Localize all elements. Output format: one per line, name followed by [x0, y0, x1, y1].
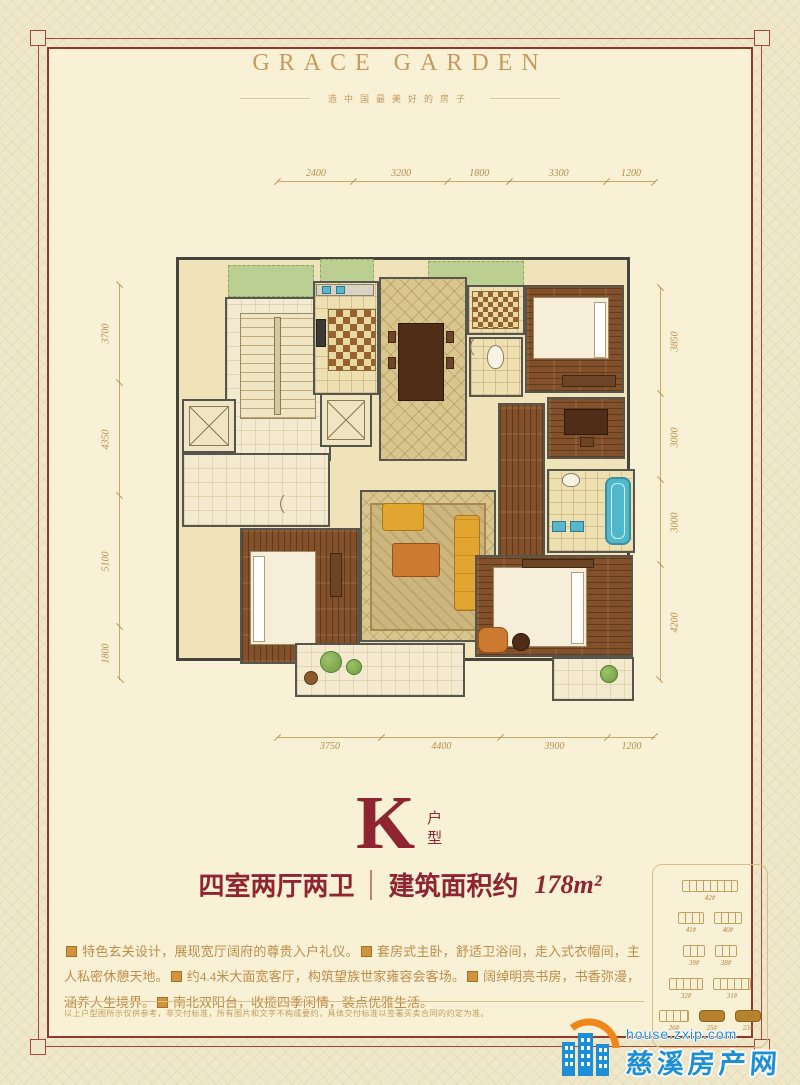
building-key-row: 42# — [682, 880, 738, 902]
frame-corner-ornament — [30, 1039, 46, 1055]
unit-description: 特色玄关设计，展现宽厅阔府的尊贵入户礼仪。套房式主卧，舒适卫浴间，走入式衣帽间，… — [64, 939, 640, 1015]
dimension-value: 3000 — [669, 512, 680, 532]
elevator-x-mark — [327, 400, 365, 440]
bullet-icon — [361, 946, 372, 957]
dimension-segment: 3300 — [510, 166, 607, 182]
bed-icon — [250, 551, 316, 645]
dimension-value: 1200 — [622, 738, 642, 752]
project-slogan: 造中国最美好的房子 — [328, 92, 472, 105]
dimension-segment: 3000 — [660, 394, 680, 479]
building-shape — [715, 945, 737, 957]
hallway — [498, 403, 545, 567]
dimension-value: 3850 — [669, 331, 680, 351]
kitchen-sink-icon — [322, 286, 331, 294]
balcony-south — [295, 643, 465, 697]
building-icon: 40# — [714, 912, 742, 934]
stair-rail — [274, 317, 281, 415]
kitchen-sink-icon — [336, 286, 345, 294]
building-shape — [713, 978, 751, 990]
description-sentence: 特色玄关设计，展现宽厅阔府的尊贵入户礼仪。 — [64, 944, 359, 959]
dimension-segment: 3200 — [354, 166, 448, 182]
dimension-value: 1800 — [100, 643, 111, 663]
dimension-segment: 4200 — [660, 565, 680, 680]
pillow — [253, 556, 265, 642]
dimension-value: 5100 — [100, 551, 111, 571]
pillow — [594, 302, 606, 358]
dimension-value: 1800 — [469, 168, 489, 181]
dimension-segment: 4350 — [100, 383, 120, 496]
building-shape — [678, 912, 704, 924]
plant-icon — [600, 665, 618, 683]
unit-area-value: 178m² — [535, 870, 602, 900]
floorplan-poster: { "header": { "title": "GRACE GARDEN", "… — [0, 0, 800, 1085]
dimension-segment: 3700 — [100, 285, 120, 383]
elevator-icon — [320, 393, 372, 447]
dimension-rail-left: 3700435051001800 — [100, 285, 120, 680]
building-label: 31# — [727, 992, 738, 1000]
building-label: 32# — [681, 992, 692, 1000]
dimension-value: 3750 — [320, 738, 340, 752]
dining-chair-icon — [446, 357, 454, 369]
dimension-segment: 3750 — [278, 737, 382, 755]
building-key-row: 32#31# — [669, 978, 751, 1000]
watermark-url: house.zxip.com — [626, 1026, 781, 1042]
dimension-segment: 1200 — [608, 737, 655, 755]
project-slogan-row: 造中国最美好的房子 — [0, 92, 800, 105]
dimension-value: 4350 — [100, 429, 111, 449]
building-key-row: 39#38# — [683, 945, 737, 967]
dimension-segment: 3850 — [660, 288, 680, 394]
coffee-table-icon — [392, 543, 440, 577]
dining-chair-icon — [388, 357, 396, 369]
dresser-icon — [330, 553, 342, 597]
dining-chair-icon — [388, 331, 396, 343]
bed-icon — [533, 297, 609, 359]
door-arc — [470, 335, 494, 359]
dimension-value: 2400 — [306, 168, 326, 181]
slogan-rule-left — [240, 98, 310, 99]
unit-type-label: 户型 — [423, 810, 444, 856]
building-shape — [669, 978, 703, 990]
dimension-segment: 4400 — [382, 737, 501, 755]
dimension-value: 4400 — [431, 738, 451, 752]
building-label: 38# — [721, 959, 732, 967]
description-sentence: 约4.4米大面宽客厅，构筑望族世家雍容会客场。 — [169, 969, 465, 984]
dimension-value: 3300 — [549, 168, 569, 181]
bullet-icon — [171, 971, 182, 982]
building-icon: 31# — [713, 978, 751, 1000]
wardrobe-icon — [562, 375, 616, 387]
dimension-value: 1200 — [621, 168, 641, 181]
building-key-row: 41#40# — [678, 912, 742, 934]
building-label: 41# — [686, 926, 697, 934]
watermark-site-name: 慈溪房产网 — [625, 1042, 783, 1081]
bath-sink-icon — [552, 521, 566, 532]
dimension-segment: 1800 — [100, 627, 120, 680]
dimension-value: 3700 — [100, 324, 111, 344]
dimension-segment: 3900 — [501, 737, 608, 755]
pot-icon — [304, 671, 318, 685]
stove-icon — [316, 319, 326, 347]
planter-north-west — [228, 265, 314, 297]
kitchen-checker-floor — [328, 309, 376, 371]
planter-north-mid — [320, 259, 374, 283]
floor-plan — [170, 253, 658, 705]
room-lobby — [182, 453, 330, 527]
chair-icon — [580, 437, 594, 447]
dining-table-icon — [398, 323, 444, 401]
site-logo-icon — [556, 1018, 622, 1080]
unit-area-label: 建筑面积约 — [388, 866, 518, 903]
desk-icon — [564, 409, 608, 435]
dimension-rail-bottom: 3750440039001200 — [278, 737, 655, 755]
summary-divider — [370, 870, 372, 900]
building-label: 39# — [689, 959, 700, 967]
bath-sink-icon — [570, 521, 584, 532]
unit-rooms-label: 四室两厅两卫 — [198, 866, 354, 903]
armchair-icon — [478, 627, 508, 653]
bullet-icon — [467, 971, 478, 982]
wardrobe-icon — [522, 559, 594, 568]
side-table-icon — [512, 633, 530, 651]
pillow — [571, 572, 584, 644]
armchair-icon — [382, 503, 424, 531]
dimension-segment: 3000 — [660, 480, 680, 565]
elevator-icon — [182, 399, 236, 453]
watermark-text-block: house.zxip.com 慈溪房产网 — [626, 1018, 781, 1081]
slogan-rule-right — [490, 98, 560, 99]
building-label: 40# — [723, 926, 734, 934]
building-icon: 41# — [678, 912, 704, 934]
plant-icon — [320, 651, 342, 673]
balcony-south-east — [552, 657, 634, 701]
dimension-segment: 1800 — [448, 166, 510, 182]
project-title: GRACE GARDEN — [0, 50, 800, 77]
unit-code-block: K 户型 — [0, 791, 800, 856]
bathtub-icon — [605, 477, 631, 545]
dimension-value: 4200 — [669, 613, 680, 633]
dimension-rail-right: 3850300030004200 — [660, 288, 680, 680]
building-shape — [714, 912, 742, 924]
frame-corner-ornament — [754, 30, 770, 46]
site-watermark: house.zxip.com 慈溪房产网 — [556, 1018, 800, 1085]
dimension-rail-top: 24003200180033001200 — [278, 166, 655, 182]
building-icon: 38# — [715, 945, 737, 967]
dimension-segment: 5100 — [100, 496, 120, 627]
bullet-icon — [66, 946, 77, 957]
elevator-x-mark — [189, 406, 229, 446]
entry-rug — [472, 291, 519, 329]
building-shape — [682, 880, 738, 892]
dimension-segment: 2400 — [278, 166, 354, 182]
frame-corner-ornament — [30, 30, 46, 46]
dimension-value: 3900 — [544, 738, 564, 752]
building-icon: 39# — [683, 945, 705, 967]
building-shape — [683, 945, 705, 957]
toilet-icon — [562, 473, 580, 487]
plant-icon — [346, 659, 362, 675]
building-icon: 32# — [669, 978, 703, 1000]
unit-letter: K — [356, 791, 415, 856]
building-icon: 42# — [682, 880, 738, 902]
footer-rule — [64, 1001, 644, 1002]
dimension-segment: 1200 — [607, 166, 655, 182]
building-label: 42# — [705, 894, 716, 902]
bullet-icon — [157, 997, 168, 1008]
door-arc — [280, 491, 306, 517]
dining-chair-icon — [446, 331, 454, 343]
dimension-value: 3000 — [669, 427, 680, 447]
dimension-value: 3200 — [391, 168, 411, 181]
